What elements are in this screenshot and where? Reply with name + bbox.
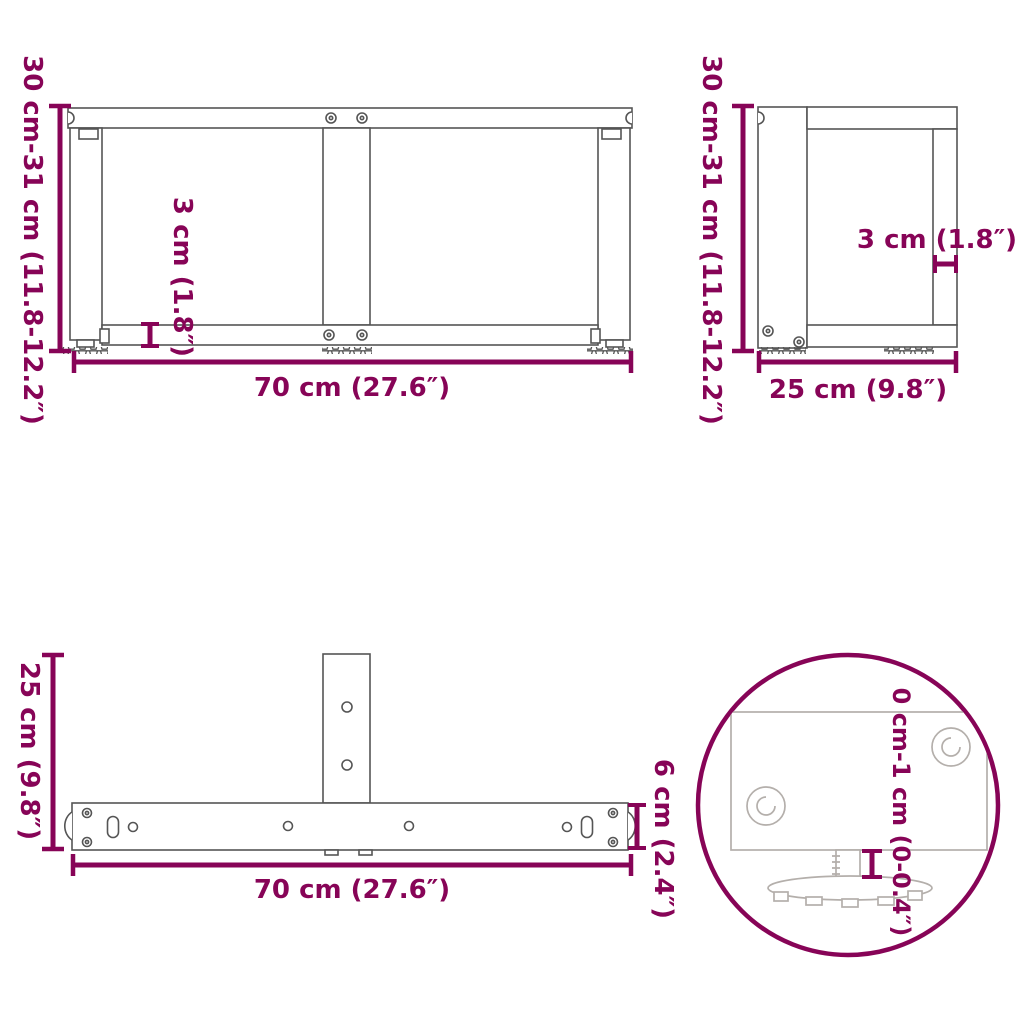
front-top-bar-notch-right (626, 112, 632, 124)
side-foot-bar (807, 325, 957, 347)
detail-screw-head (932, 728, 970, 766)
top-center-tab (325, 850, 338, 855)
side-height-dimension-line (732, 106, 754, 351)
front-right-leg (598, 128, 630, 340)
side-depth-dimension-line (759, 351, 956, 373)
top-width-dimension-line (73, 854, 631, 876)
detail-adjustment-range-label: 0 cm-1 cm (0-0.4″) (889, 688, 913, 937)
front-rail-thickness-label: 3 cm (1.8″) (169, 197, 195, 357)
front-foot-pad-right (606, 340, 623, 347)
front-left-leg (70, 128, 102, 340)
side-adjustable-feet (759, 347, 934, 354)
top-depth-dimension-line (42, 655, 64, 849)
top-depth-label: 25 cm (9.8″) (16, 662, 42, 840)
side-post (758, 107, 807, 348)
front-height-label: 30 cm-31 cm (11.8-12.2″) (19, 55, 45, 425)
front-foot-pad-left (77, 340, 94, 347)
top-view-drawing (65, 654, 635, 855)
top-stem (323, 654, 370, 803)
front-top-bar-notch-left (68, 112, 74, 124)
front-adjustable-feet (62, 347, 633, 354)
top-center-tab (359, 850, 372, 855)
front-rail-bracket-right (591, 329, 600, 343)
front-rail-bracket-left (100, 329, 109, 343)
side-frame-thickness-label: 3 cm (1.8″) (857, 227, 1017, 253)
detail-screw-head (747, 787, 785, 825)
front-view-drawing (62, 108, 633, 354)
side-height-label: 30 cm-31 cm (11.8-12.2″) (698, 55, 724, 425)
diagram-drawing (0, 0, 1024, 1024)
top-cross-bar (72, 803, 628, 850)
front-width-dimension-line (74, 351, 631, 373)
front-right-bracket (602, 129, 621, 139)
top-stem-hole (342, 702, 352, 712)
front-left-bracket (79, 129, 98, 139)
front-top-bar (68, 108, 632, 128)
top-width-label: 70 cm (27.6″) (254, 877, 450, 903)
top-bar-end-right (628, 812, 635, 840)
front-width-label: 70 cm (27.6″) (254, 375, 450, 401)
front-center-post (323, 128, 370, 325)
dimension-diagram: 30 cm-31 cm (11.8-12.2″) 3 cm (1.8″) 70 … (0, 0, 1024, 1024)
side-depth-label: 25 cm (9.8″) (769, 377, 947, 403)
front-height-dimension-line (49, 106, 71, 351)
side-post-notch (758, 112, 764, 124)
top-bar-width-label: 6 cm (2.4″) (650, 759, 676, 919)
detail-view (698, 655, 998, 955)
side-top-plate (807, 107, 957, 129)
top-stem-hole (342, 760, 352, 770)
top-bar-end-left (65, 812, 72, 840)
